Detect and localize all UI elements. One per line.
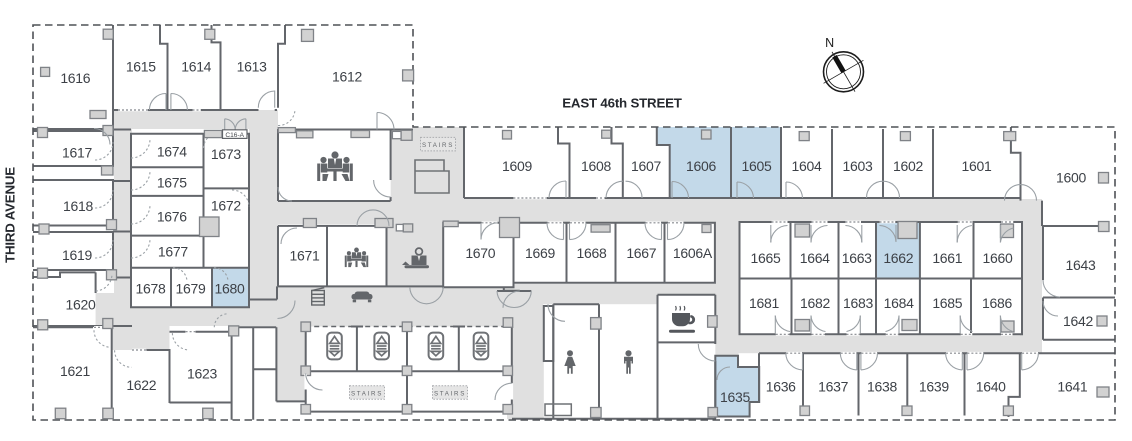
svg-text:1640: 1640 (976, 378, 1006, 394)
svg-text:1661: 1661 (932, 250, 962, 266)
svg-text:1621: 1621 (60, 363, 90, 379)
svg-text:1669: 1669 (525, 245, 555, 261)
svg-text:1605: 1605 (742, 158, 772, 174)
svg-text:1686: 1686 (982, 295, 1012, 311)
svg-text:1637: 1637 (818, 378, 848, 394)
svg-text:1662: 1662 (883, 250, 913, 266)
svg-text:1614: 1614 (181, 59, 211, 75)
svg-text:1643: 1643 (1066, 257, 1096, 273)
svg-text:1607: 1607 (631, 158, 661, 174)
svg-text:1636: 1636 (766, 378, 796, 394)
svg-text:STAIRS: STAIRS (351, 390, 383, 397)
svg-text:1677: 1677 (158, 244, 188, 260)
svg-text:1617: 1617 (62, 144, 92, 160)
svg-text:1668: 1668 (577, 245, 607, 261)
svg-text:1667: 1667 (626, 245, 656, 261)
svg-text:1685: 1685 (932, 295, 962, 311)
svg-text:1620: 1620 (66, 296, 96, 312)
svg-text:STAIRS: STAIRS (422, 142, 454, 149)
svg-text:THIRD AVENUE: THIRD AVENUE (3, 167, 18, 263)
svg-text:1619: 1619 (62, 247, 92, 263)
svg-text:1616: 1616 (60, 70, 90, 86)
svg-text:1608: 1608 (581, 158, 611, 174)
svg-text:1683: 1683 (843, 295, 873, 311)
svg-text:1670: 1670 (465, 245, 495, 261)
svg-text:1674: 1674 (157, 143, 187, 159)
svg-text:1682: 1682 (800, 295, 830, 311)
svg-text:C16-A: C16-A (225, 132, 244, 139)
svg-text:1623: 1623 (187, 365, 217, 381)
svg-text:1602: 1602 (893, 158, 923, 174)
svg-text:1618: 1618 (63, 198, 93, 214)
svg-text:1660: 1660 (983, 250, 1013, 266)
svg-text:1606: 1606 (686, 158, 716, 174)
svg-text:1642: 1642 (1063, 313, 1093, 329)
svg-text:1603: 1603 (843, 158, 873, 174)
svg-text:1678: 1678 (136, 280, 166, 296)
svg-text:1675: 1675 (157, 175, 187, 191)
svg-text:1612: 1612 (332, 68, 362, 84)
svg-text:1622: 1622 (126, 377, 156, 393)
svg-text:1679: 1679 (176, 280, 206, 296)
svg-text:1663: 1663 (842, 250, 872, 266)
svg-text:1613: 1613 (237, 59, 267, 75)
svg-text:N: N (825, 36, 834, 50)
svg-text:1606A: 1606A (673, 245, 713, 261)
svg-text:1638: 1638 (867, 378, 897, 394)
svg-text:1671: 1671 (290, 247, 320, 263)
svg-text:1600: 1600 (1056, 169, 1086, 185)
svg-text:1641: 1641 (1057, 378, 1087, 394)
svg-text:1639: 1639 (919, 378, 949, 394)
svg-text:1676: 1676 (157, 209, 187, 225)
svg-text:1609: 1609 (502, 158, 532, 174)
svg-text:1615: 1615 (126, 59, 156, 75)
svg-text:1680: 1680 (215, 280, 245, 296)
svg-text:1664: 1664 (800, 250, 830, 266)
svg-text:1684: 1684 (884, 295, 914, 311)
svg-text:1673: 1673 (211, 146, 241, 162)
svg-text:EAST 46th STREET: EAST 46th STREET (562, 96, 682, 111)
svg-text:STAIRS: STAIRS (434, 390, 466, 397)
svg-text:1604: 1604 (792, 158, 822, 174)
svg-text:1635: 1635 (720, 389, 750, 405)
svg-text:1681: 1681 (749, 295, 779, 311)
svg-text:1665: 1665 (751, 250, 781, 266)
svg-text:1601: 1601 (962, 158, 992, 174)
svg-text:1672: 1672 (211, 197, 241, 213)
